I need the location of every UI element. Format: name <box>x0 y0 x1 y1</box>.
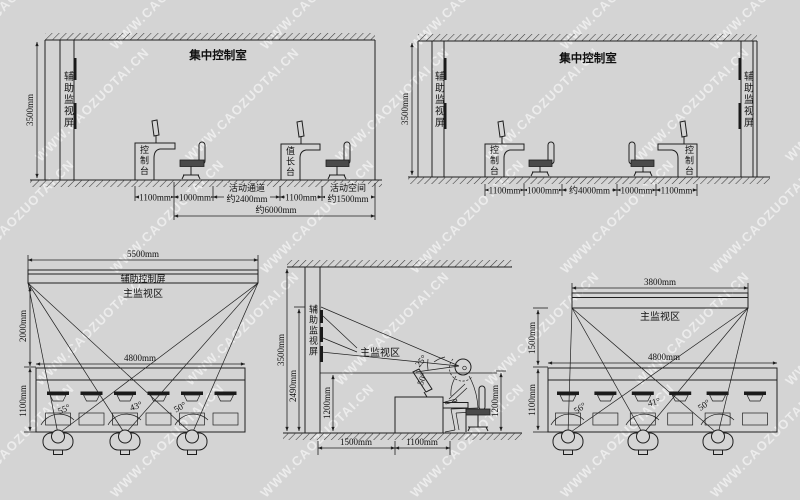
view-angle: 56° <box>572 400 588 416</box>
operator-heads <box>553 430 733 455</box>
view-angle: 43° <box>128 399 144 413</box>
view-angle: 55° <box>56 402 72 417</box>
main-view-zone-label: 主监视区 <box>360 346 400 359</box>
aux-screen-label-left: 辅助监视屏 <box>433 70 445 129</box>
dim-label: 1100mm <box>285 193 317 203</box>
aux-screen-label: 辅助监视屏 <box>62 70 74 129</box>
walkway-value: 约2400mm <box>226 193 267 204</box>
main-view-zone-label: 主监视区 <box>123 287 163 300</box>
diagram-sightlines-left: 5500mm 辅助控制屏 主监视区 2000mm 1100mm 4800mm <box>18 249 258 455</box>
view-angle-up: 25° <box>413 353 429 369</box>
dimension-chain: 1100mm 1000mm 约4000mm 1000mm 1100mm <box>485 184 697 196</box>
aux-screen-mark <box>74 103 77 129</box>
aux-screen-mark <box>74 58 77 80</box>
view-angle: 50° <box>172 399 188 414</box>
console-desk-label: 控制台 <box>684 144 694 177</box>
dim-level-left: 1200mm <box>322 387 332 419</box>
dim-total-width: 约6000mm <box>255 204 296 215</box>
dim-label: 1100mm <box>139 193 171 203</box>
aux-screen-label-right: 辅助监视屏 <box>742 70 754 129</box>
view-angle: 50° <box>696 397 712 413</box>
dim-screen-width: 5500mm <box>127 249 159 259</box>
floor-hatch <box>283 433 522 440</box>
console-desk <box>395 397 443 433</box>
monitor <box>152 120 159 136</box>
ceiling-hatch <box>287 260 512 267</box>
diagram-room-section-left: 3500mm 辅助监视屏 集中控制室 控制台 值长 <box>25 33 382 220</box>
space-name: 活动空间 <box>330 182 366 193</box>
room-title: 集中控制室 <box>558 51 617 65</box>
diagram-room-section-right: 3500mm 辅助监视屏 辅助监视屏 集中控制室 控制台 <box>400 34 770 196</box>
dim-label: 1000mm <box>179 193 211 203</box>
diagram-operator-side-view: 辅助监视屏 3500mm 2490mm 主监视区 25° 50° <box>276 260 522 455</box>
dim-room-height: 3500mm <box>25 94 35 126</box>
aux-screen-label: 辅助监视屏 <box>308 304 318 358</box>
dim-desk-distance: 1100mm <box>406 437 438 447</box>
chief-desk-label: 值长台 <box>285 145 295 178</box>
ceiling-hatch <box>45 33 375 40</box>
main-screen <box>572 293 748 308</box>
console-desk-label: 控制台 <box>139 144 149 177</box>
control-room-ergonomics-diagram: WWW.CAOZUOTAI.CNWWW.CAOZUOTAI.CNWWW.CAOZ… <box>0 0 800 500</box>
dim-console-depth: 1100mm <box>527 384 537 416</box>
dim-level-right: 1200mm <box>490 385 500 417</box>
dim-label: 约4000mm <box>569 185 610 196</box>
dim-ceiling-height: 3500mm <box>276 334 286 366</box>
operator-chair <box>629 142 654 176</box>
walkway-name: 活动通道 <box>229 182 265 193</box>
dim-height: 1500mm <box>527 322 537 354</box>
operator-heads <box>43 430 207 455</box>
dim-label: 1100mm <box>489 186 521 196</box>
operator-chair <box>529 142 554 176</box>
view-angle: 41° <box>647 395 662 408</box>
dim-screen-width: 3800mm <box>644 277 676 287</box>
monitor <box>297 121 304 137</box>
diagram-sightlines-right: 3800mm 主监视区 1500mm 1100mm 4800mm <box>527 277 777 455</box>
dim-label: 1000mm <box>620 186 652 196</box>
dim-label: 1000mm <box>527 186 559 196</box>
dim-wall-distance: 1500mm <box>340 437 372 447</box>
operator-chair <box>326 142 350 179</box>
space-value: 约1500mm <box>327 193 368 204</box>
dim-label: 1100mm <box>661 186 693 196</box>
operator-chair <box>180 142 205 179</box>
dim-console-depth: 1100mm <box>18 385 28 417</box>
dim-height: 2000mm <box>18 310 28 342</box>
dimension-chain: 1100mm 1000mm 活动通道 约2400mm 1100mm 活动空间 约… <box>135 182 375 220</box>
diagram-canvas: 3500mm 辅助监视屏 集中控制室 控制台 值长 <box>0 0 800 500</box>
dim-room-height: 3500mm <box>400 93 410 125</box>
dim-screen-top: 2490mm <box>288 370 298 402</box>
console-desk-label: 控制台 <box>489 144 499 177</box>
seated-operator <box>445 359 478 432</box>
keyboard <box>445 399 457 404</box>
sight-lines <box>568 308 748 434</box>
dim-console-width: 4800mm <box>648 352 680 362</box>
aux-control-screen-label: 辅助控制屏 <box>120 273 165 284</box>
room-title: 集中控制室 <box>188 48 247 62</box>
ceiling-hatch <box>418 34 757 41</box>
main-view-zone-label: 主监视区 <box>640 310 680 323</box>
floor-hatch <box>408 177 770 184</box>
dim-console-width: 4800mm <box>124 353 156 363</box>
keyboard-tray <box>443 403 468 409</box>
